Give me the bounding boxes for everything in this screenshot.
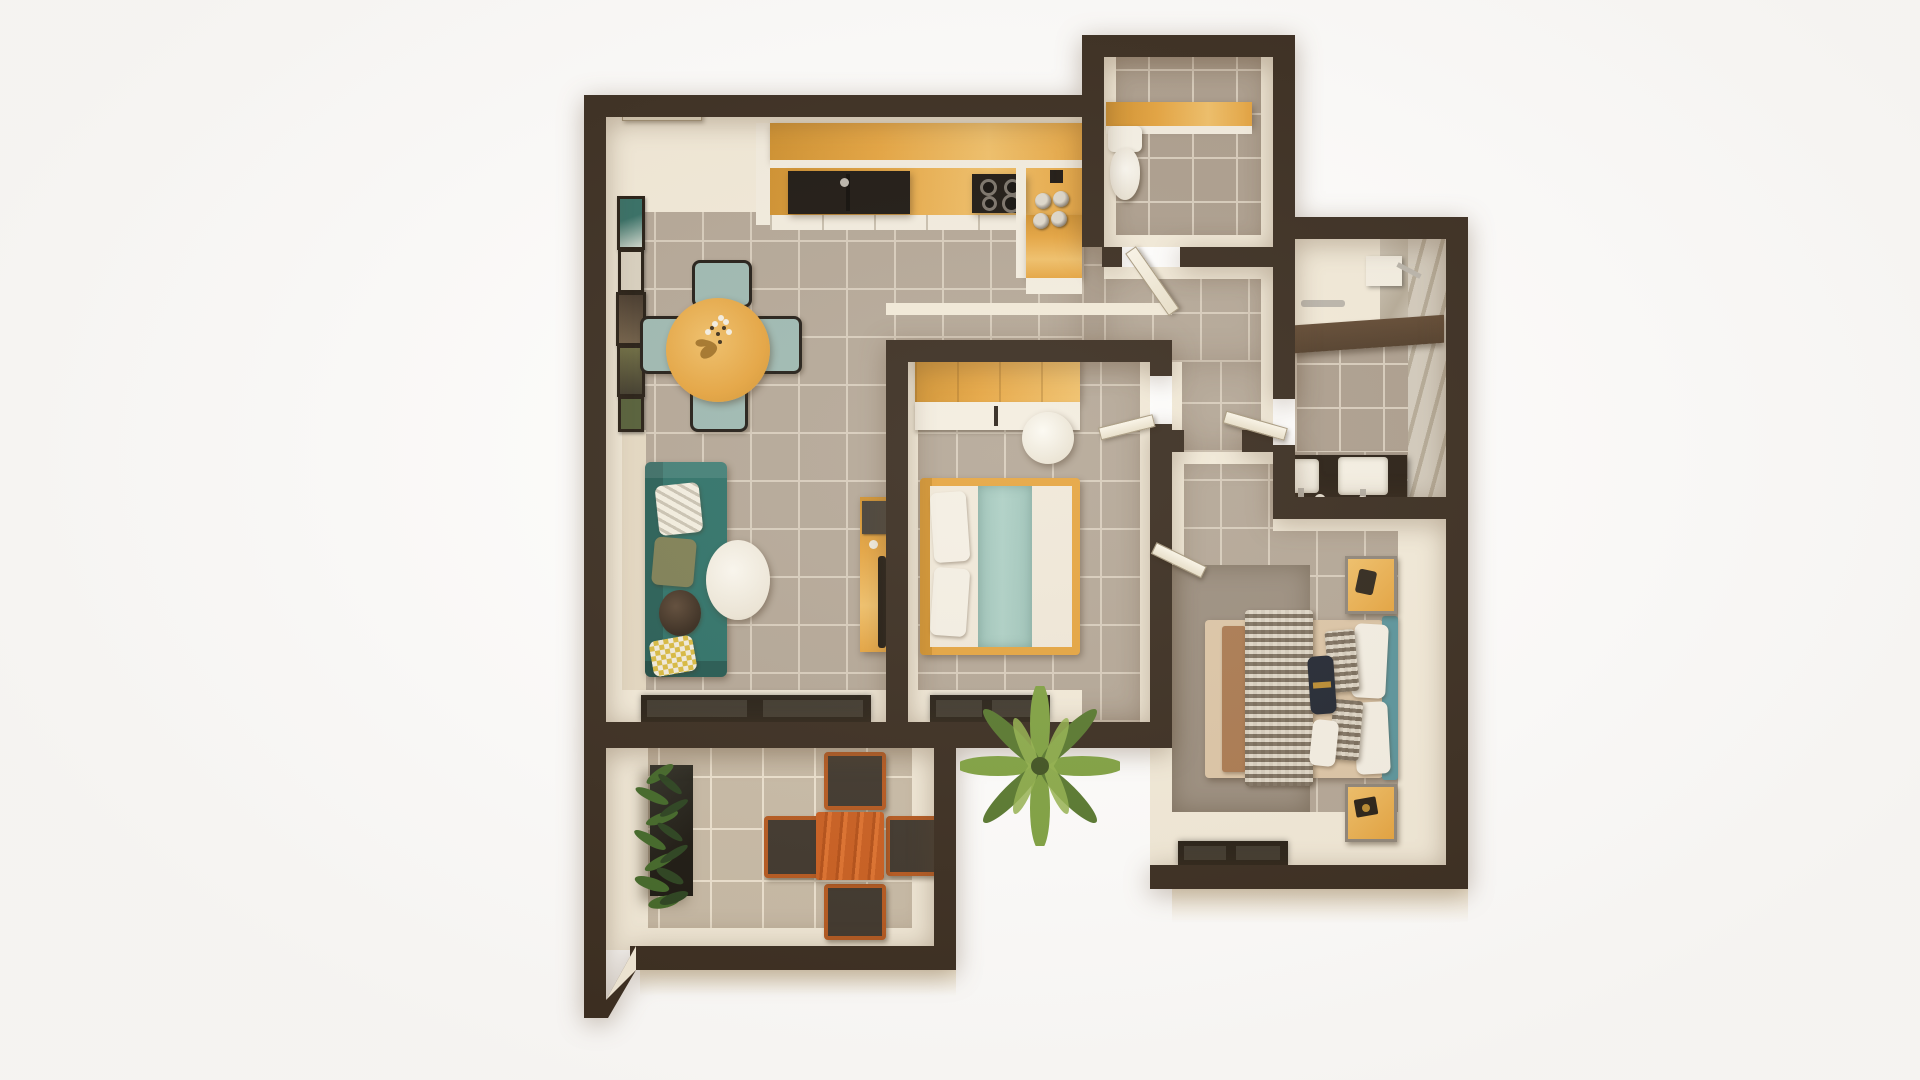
wall-wc-bottom-b: [1180, 247, 1273, 267]
wall-kitchen-right: [1082, 117, 1104, 247]
wall-bedroom1-top: [886, 340, 1172, 362]
wall-wc-top: [1082, 35, 1295, 57]
wall-top: [584, 95, 1082, 117]
floorplan-render: [0, 0, 1920, 1080]
palm-plant: [960, 686, 1120, 846]
wall-balcony-chamfer: [580, 940, 670, 1050]
wall-shower-bedroom2: [1273, 497, 1446, 519]
wall-shower-left-a: [1273, 239, 1295, 399]
wall-wc-bottom-a: [1102, 247, 1122, 267]
wall-bedroom1-right-a: [1150, 362, 1172, 376]
wall-balcony-bottom: [630, 946, 956, 970]
wall-hall-bed2-a: [1172, 430, 1184, 452]
wall-bedroom1-left: [886, 362, 908, 722]
wall-wc-right: [1273, 35, 1295, 239]
wall-shower-left-b: [1273, 445, 1295, 497]
wall-bedroom2-bottom: [1150, 865, 1468, 889]
wall-shower-top: [1273, 217, 1468, 239]
wall-right-outer: [1446, 217, 1468, 889]
wall-bedroom1-right-b: [1150, 424, 1172, 730]
wall-balcony-right: [934, 748, 956, 970]
wall-left-outer: [584, 95, 606, 1015]
walls-layer: [0, 0, 1920, 1080]
